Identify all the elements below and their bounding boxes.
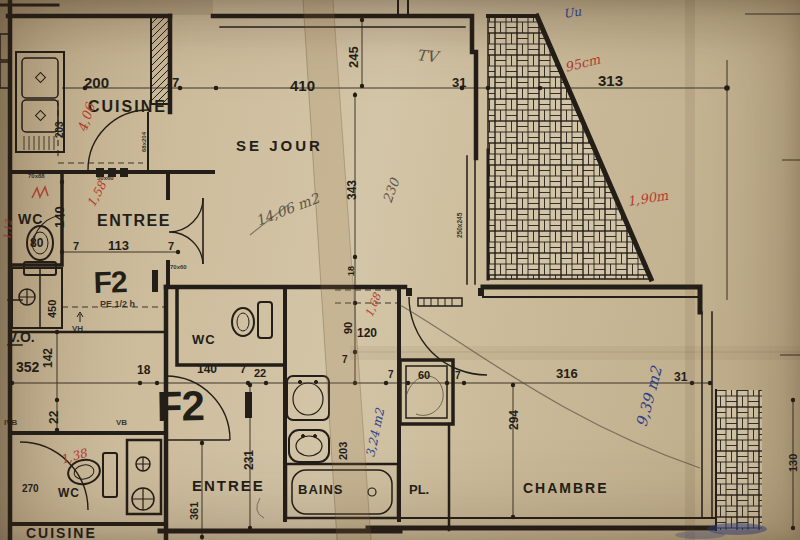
dim-245: 245: [346, 46, 361, 68]
handwriting-red-168: 1,68: [363, 291, 385, 320]
handwriting-red-158: 1,58: [84, 178, 110, 209]
dim-231: 231: [242, 450, 256, 470]
room-label-wc-bottom: WC: [58, 486, 80, 500]
note-vh: VH: [72, 324, 83, 333]
floorplan-svg: CUISINE SE JOUR ENTREE WC WC ENTREE BAIN…: [0, 0, 800, 540]
dim-7e: 7: [342, 354, 348, 365]
dim-203b: 203: [54, 121, 65, 138]
handwriting-pencil-sejour-area: 14,06 m2: [253, 190, 322, 229]
note-door-size-2: 50x60: [97, 175, 114, 181]
dim-7b: 7: [73, 240, 79, 252]
dim-313: 313: [598, 72, 623, 89]
dim-140a: 140: [52, 206, 67, 228]
dim-113: 113: [108, 238, 129, 253]
dim-316: 316: [556, 366, 578, 381]
apartment-type-stamp-lower: F2: [156, 382, 204, 430]
dim-7f: 7: [455, 370, 461, 381]
dim-80: 80: [30, 236, 44, 250]
note-door-size-4: 70x60: [170, 264, 187, 270]
dim-294: 294: [507, 410, 521, 430]
room-label-sejour: SE JOUR: [236, 137, 323, 154]
handwriting-blue-bains-area: 3,24 m2: [363, 406, 387, 459]
handwriting-blue-chambre-area: 9,39 m2: [632, 363, 666, 429]
handwriting-red-190m: 1,90m: [626, 188, 670, 209]
dim-140b: 140: [197, 362, 217, 376]
room-label-wc-mid: WC: [192, 332, 216, 347]
dim-120: 120: [357, 326, 377, 340]
dim-22a: 22: [47, 410, 61, 424]
dim-270: 270: [22, 483, 39, 494]
dim-410: 410: [290, 77, 315, 94]
note-door-size-1: 70x88: [28, 173, 45, 179]
bidet: [289, 430, 329, 462]
dim-352: 352: [16, 359, 40, 375]
dim-142: 142: [41, 348, 55, 368]
red-scribble: [32, 187, 48, 198]
handwriting-pencil-230: 230: [380, 175, 403, 205]
dim-130: 130: [787, 454, 799, 472]
dim-7d: 7: [240, 363, 246, 375]
handwriting-blue-scribble: Uu: [562, 5, 582, 21]
dim-203a: 203: [337, 442, 349, 460]
dim-450: 450: [46, 300, 58, 318]
room-label-wc-top: WC: [18, 211, 43, 227]
note-window-size: 250x245: [456, 212, 463, 238]
apartment-type-stamp-upper: F2: [93, 265, 127, 299]
handwriting-pencil-tv: TV: [416, 46, 442, 66]
note-door-size-3: 68x204: [141, 131, 147, 152]
dim-90: 90: [342, 322, 354, 334]
room-label-cuisine-bottom: CUISINE: [26, 525, 97, 540]
closet-scribble: [406, 376, 443, 415]
room-label-bains: BAINS: [298, 482, 343, 497]
dim-31a: 31: [452, 75, 466, 90]
dim-31b: 31: [674, 370, 688, 384]
vh-arrow-icon: [77, 312, 83, 322]
dim-22b: 22: [254, 367, 266, 379]
dim-343: 343: [345, 180, 359, 200]
toilet-mid: [232, 302, 272, 338]
handwriting-red-112: 1,12: [2, 218, 14, 240]
dim-7c: 7: [168, 240, 174, 252]
dim-18a: 18: [137, 363, 151, 377]
dim-7a: 7: [172, 75, 179, 90]
note-ivb: IVB: [4, 418, 18, 427]
note-pe: PE 1/2 h: [100, 299, 135, 309]
room-label-vo: V.O.: [8, 329, 35, 345]
room-label-pl: PL.: [409, 482, 429, 497]
room-label-cuisine-top: CUISINE: [88, 98, 167, 115]
dim-7g: 7: [388, 369, 394, 380]
dim-60a: 60: [418, 369, 430, 381]
dim-200: 200: [84, 74, 109, 91]
toilet-tank: [103, 453, 117, 497]
radiator: [418, 298, 462, 306]
room-label-entree-bottom: ENTREE: [192, 477, 265, 494]
dim-361: 361: [188, 502, 200, 520]
room-label-entree-top: ENTREE: [97, 212, 171, 229]
note-vb: VB: [116, 418, 127, 427]
room-label-chambre: CHAMBRE: [523, 480, 609, 496]
dim-18b: 18: [346, 266, 356, 276]
handwriting-red-95cm: 95cm: [563, 51, 602, 74]
floorplan-photo: CUISINE SE JOUR ENTREE WC WC ENTREE BAIN…: [0, 0, 800, 540]
